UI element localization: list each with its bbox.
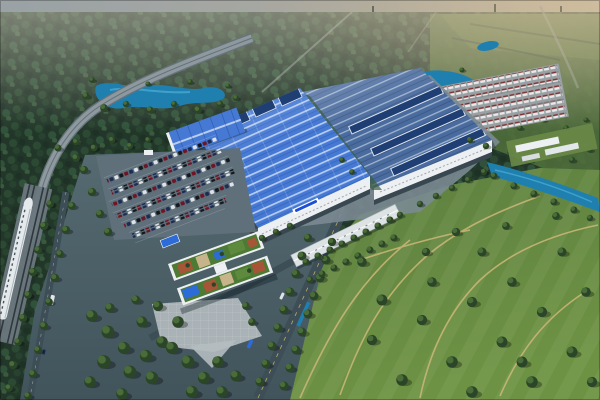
aerial-scene	[0, 0, 600, 400]
gate-hut	[144, 150, 153, 155]
aerial-render-screenshot	[0, 0, 600, 400]
